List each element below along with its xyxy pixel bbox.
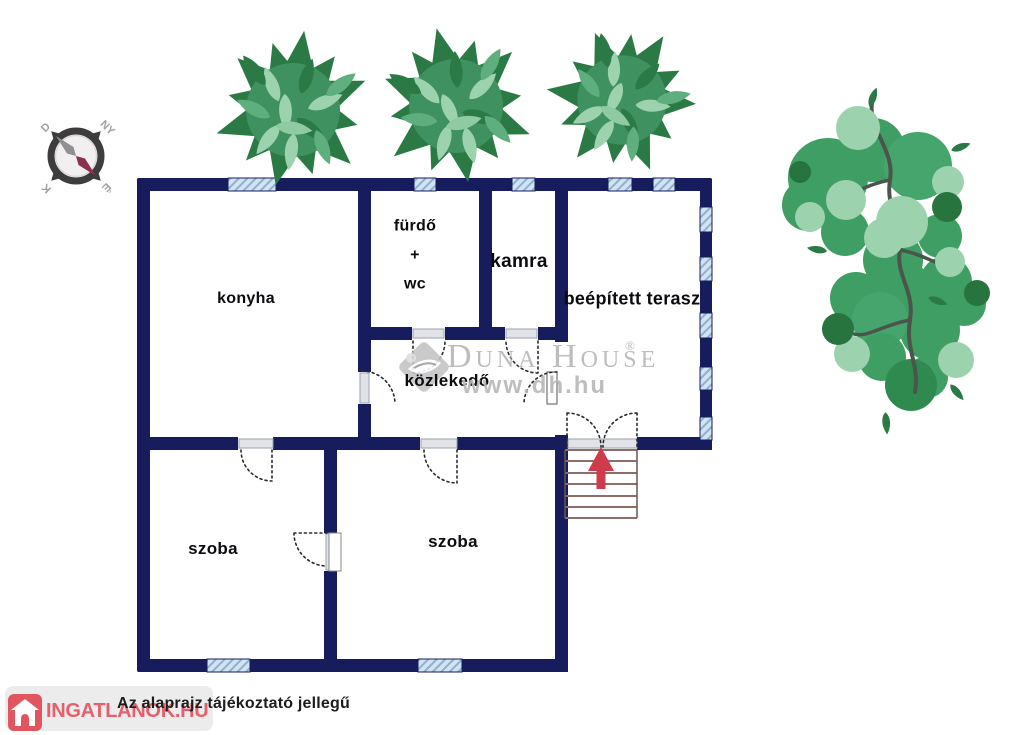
tree-icon bbox=[359, 10, 548, 201]
window-top-terasz-2 bbox=[653, 178, 675, 191]
room-label-furdo-line3: wc bbox=[394, 270, 436, 299]
window-terasz-right-5 bbox=[700, 417, 712, 440]
wall-right-upper bbox=[555, 191, 568, 342]
window-terasz-right-4 bbox=[700, 367, 712, 390]
compass-label-east: K bbox=[40, 181, 54, 195]
sill-konyha-kozlekedo bbox=[360, 373, 369, 403]
wall-right-lower bbox=[555, 435, 568, 672]
door-panel-szoba bbox=[329, 533, 341, 571]
wall-konyha-right-lower bbox=[358, 404, 371, 443]
window-top-furdo bbox=[414, 178, 436, 191]
room-label-terasz: beépített terasz bbox=[564, 289, 701, 310]
room-label-kamra: kamra bbox=[490, 251, 548, 273]
room-label-furdo-wc: fürdő + wc bbox=[394, 212, 436, 299]
wall-mid-1 bbox=[137, 437, 238, 450]
room-label-furdo-line1: fürdő bbox=[394, 212, 436, 241]
wall-mid-2 bbox=[273, 437, 420, 450]
window-terasz-right-3 bbox=[700, 313, 712, 338]
wall-konyha-right-upper bbox=[358, 191, 371, 372]
wall-szoba-divider-lower bbox=[324, 571, 337, 672]
compass-icon: D NY K É bbox=[39, 118, 117, 195]
room-label-konyha: konyha bbox=[217, 290, 275, 308]
sill-kamra bbox=[506, 329, 537, 338]
sill-furdo bbox=[413, 329, 444, 338]
compass-label-south: D bbox=[39, 121, 53, 135]
tree-icon bbox=[518, 0, 724, 202]
window-bottom-szoba-left bbox=[207, 659, 250, 672]
room-label-szoba-left: szoba bbox=[188, 539, 238, 559]
wall-mid-3 bbox=[457, 437, 568, 450]
window-terasz-right-2 bbox=[700, 257, 712, 281]
stairs bbox=[565, 447, 637, 518]
room-label-szoba-right: szoba bbox=[428, 532, 478, 552]
ingatlanok-house-icon bbox=[8, 694, 42, 731]
floorplan-page: D NY K É konyha fürdő + wc kamra beépíte… bbox=[0, 0, 1024, 735]
door-arc-konyha-szoba bbox=[241, 450, 272, 481]
up-arrow-icon bbox=[588, 447, 614, 489]
wall-bottom bbox=[137, 659, 568, 672]
tree-icon bbox=[203, 20, 379, 198]
door-arc-szoba-szoba bbox=[294, 533, 327, 566]
compass-label-west: NY bbox=[97, 118, 117, 138]
sill-kozlekedo-szoba bbox=[421, 439, 457, 448]
compass-label-north: É bbox=[99, 180, 113, 194]
floorplan-disclaimer: Az alaprajz tájékoztató jellegű bbox=[117, 695, 350, 713]
bush-icon bbox=[782, 86, 990, 434]
window-top-kamra bbox=[512, 178, 535, 191]
duna-house-registered: ® bbox=[625, 338, 635, 354]
wall-left bbox=[137, 178, 150, 672]
window-top-terasz-1 bbox=[608, 178, 632, 191]
room-label-furdo-line2: + bbox=[394, 241, 436, 270]
door-arc-kozlekedo-szoba bbox=[424, 450, 457, 483]
sill-konyha-szoba bbox=[239, 439, 273, 448]
wall-szoba-divider-upper bbox=[324, 450, 337, 533]
duna-house-url-watermark: www.dh.hu bbox=[462, 372, 607, 400]
window-terasz-right-1 bbox=[700, 207, 712, 232]
window-bottom-szoba-right bbox=[418, 659, 462, 672]
window-top-konyha bbox=[228, 178, 276, 191]
